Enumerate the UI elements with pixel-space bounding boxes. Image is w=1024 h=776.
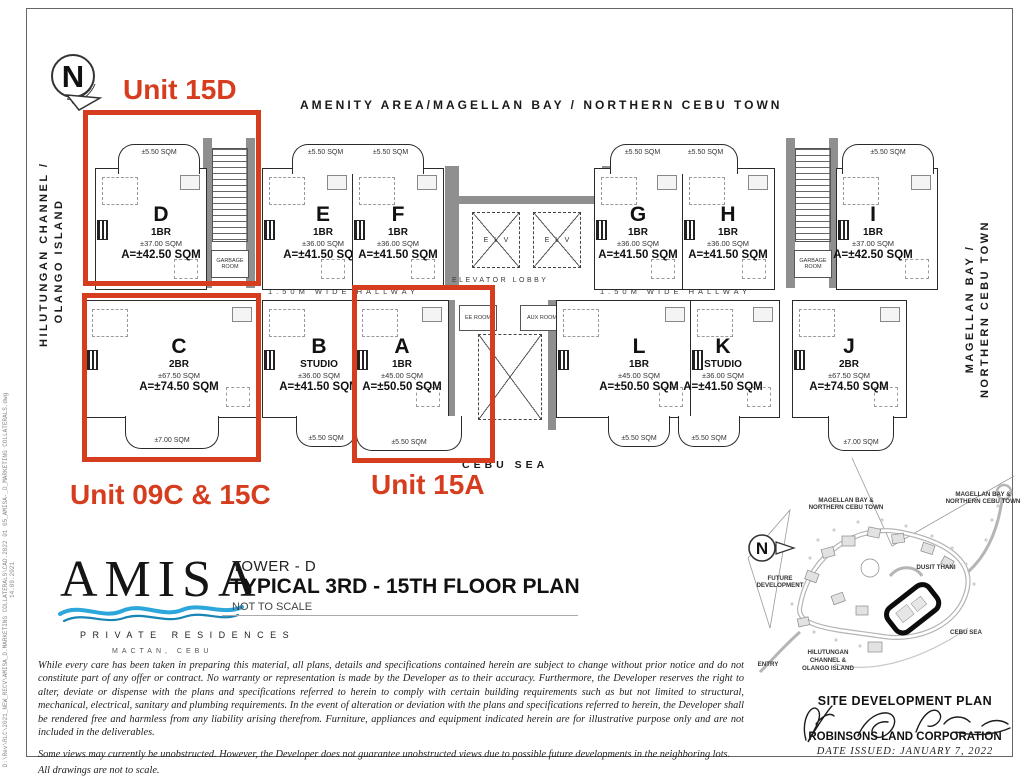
balcony-area-label: ±5.50 SQM (308, 435, 343, 442)
highlight-box-unit-15d (83, 110, 261, 286)
bathroom-fixture (748, 175, 768, 190)
unit-label: K STUDIO ±36.00 SQM A=±41.50 SQM (677, 335, 769, 394)
balcony-area-label: ±5.50 SQM (691, 435, 726, 442)
elevator-label: ELV (478, 237, 515, 244)
balcony: ±5.50 SQM (678, 416, 740, 447)
unit-type: 2BR (803, 359, 895, 371)
unit-letter: G (592, 203, 684, 227)
unit-type: STUDIO (677, 359, 769, 371)
balcony-area-label: ±5.50 SQM (308, 149, 343, 156)
highlight-box-unit-09c-15c (82, 293, 261, 462)
unit-block: J 2BR ±67.50 SQM A=±74.50 SQM (792, 300, 907, 418)
elevator-label: ELV (539, 237, 576, 244)
bathroom-fixture (657, 175, 677, 190)
unit-size: ±36.00 SQM (677, 372, 769, 381)
elevator-shaft: ELV (472, 212, 520, 268)
furniture-outline (601, 177, 637, 205)
unit-label: I 1BR ±37.00 SQM A=±42.50 SQM (827, 203, 919, 262)
unit-block: E 1BR ±36.00 SQM A=±41.50 SQM (262, 168, 354, 290)
unit-type: 1BR (352, 227, 444, 239)
highlight-box-unit-15a (352, 285, 495, 463)
unit-letter: L (593, 335, 685, 359)
furniture-outline (697, 309, 733, 337)
unit-label: G 1BR ±36.00 SQM A=±41.50 SQM (592, 203, 684, 262)
furniture-outline (689, 177, 725, 205)
furniture-outline (563, 309, 599, 337)
elevator-lobby-label: ELEVATOR LOBBY (452, 277, 548, 284)
unit-size: ±36.00 SQM (682, 240, 774, 249)
unit-block: G 1BR ±36.00 SQM A=±41.50 SQM (594, 168, 684, 290)
bathroom-fixture (665, 307, 685, 322)
unit-label: H 1BR ±36.00 SQM A=±41.50 SQM (682, 203, 774, 262)
unit-letter: J (803, 335, 895, 359)
furniture-outline (359, 177, 395, 205)
balcony-area-label: ±7.00 SQM (843, 439, 878, 446)
bathroom-fixture (753, 307, 773, 322)
unit-area: A=±42.50 SQM (827, 249, 919, 262)
furniture-outline (843, 177, 879, 205)
wall (445, 166, 459, 288)
unit-type: 1BR (827, 227, 919, 239)
balcony-area-label: ±5.50 SQM (621, 435, 656, 442)
floor-plan-page: D:\Rev\RLC\2021_NEW_RECV\AMISA_D.MARKETI… (0, 0, 1024, 776)
bathroom-fixture (880, 307, 900, 322)
unit-label: L 1BR ±45.00 SQM A=±50.50 SQM (593, 335, 685, 394)
unit-area: A=±41.50 SQM (677, 381, 769, 394)
unit-area: A=±41.50 SQM (352, 249, 444, 262)
unit-letter: F (352, 203, 444, 227)
wardrobe-mark (558, 350, 569, 370)
elevator-shaft: ELV (533, 212, 581, 268)
unit-area: A=±41.50 SQM (682, 249, 774, 262)
stairs (795, 148, 831, 242)
unit-letter: H (682, 203, 774, 227)
furniture-outline (269, 177, 305, 205)
bathroom-fixture (327, 175, 347, 190)
unit-letter: I (827, 203, 919, 227)
unit-label: J 2BR ±67.50 SQM A=±74.50 SQM (803, 335, 895, 394)
unit-type: 1BR (682, 227, 774, 239)
balcony: ±5.50 SQM±5.50 SQM (610, 144, 738, 174)
unit-block: L 1BR ±45.00 SQM A=±50.50 SQM (556, 300, 692, 418)
balcony: ±7.00 SQM (828, 416, 894, 451)
unit-type: 1BR (593, 359, 685, 371)
unit-size: ±37.00 SQM (827, 240, 919, 249)
unit-type: 1BR (592, 227, 684, 239)
annotation-unit-15d: Unit 15D (123, 74, 237, 106)
balcony-area-label: ±5.50 SQM (625, 149, 660, 156)
unit-block: F 1BR ±36.00 SQM A=±41.50 SQM (352, 168, 444, 290)
balcony: ±5.50 SQM (842, 144, 934, 174)
unit-area: A=±41.50 SQM (592, 249, 684, 262)
unit-size: ±36.00 SQM (592, 240, 684, 249)
wall (459, 196, 602, 204)
annotation-unit-09c-15c: Unit 09C & 15C (70, 479, 271, 511)
unit-area: A=±74.50 SQM (803, 381, 895, 394)
unit-area: A=±50.50 SQM (593, 381, 685, 394)
balcony: ±5.50 SQM (296, 416, 356, 447)
unit-size: ±67.50 SQM (803, 372, 895, 381)
unit-label: F 1BR ±36.00 SQM A=±41.50 SQM (352, 203, 444, 262)
furniture-outline (269, 309, 305, 337)
balcony: ±5.50 SQM±5.50 SQM (292, 144, 424, 174)
unit-block: I 1BR ±37.00 SQM A=±42.50 SQM (836, 168, 938, 290)
signatures-icon (796, 700, 1016, 744)
unit-block: K STUDIO ±36.00 SQM A=±41.50 SQM (690, 300, 780, 418)
unit-block: H 1BR ±36.00 SQM A=±41.50 SQM (682, 168, 775, 290)
annotation-unit-15a: Unit 15A (371, 469, 485, 501)
balcony-area-label: ±5.50 SQM (870, 149, 905, 156)
balcony: ±5.50 SQM (608, 416, 670, 447)
unit-size: ±36.00 SQM (352, 240, 444, 249)
balcony-area-label: ±5.50 SQM (688, 149, 723, 156)
unit-letter: K (677, 335, 769, 359)
furniture-outline (799, 309, 835, 337)
date-issued: DATE ISSUED: JANUARY 7, 2022 (800, 746, 1010, 757)
bathroom-fixture (911, 175, 931, 190)
unit-size: ±45.00 SQM (593, 372, 685, 381)
wardrobe-mark (264, 220, 275, 240)
bathroom-fixture (417, 175, 437, 190)
balcony-area-label: ±5.50 SQM (373, 149, 408, 156)
